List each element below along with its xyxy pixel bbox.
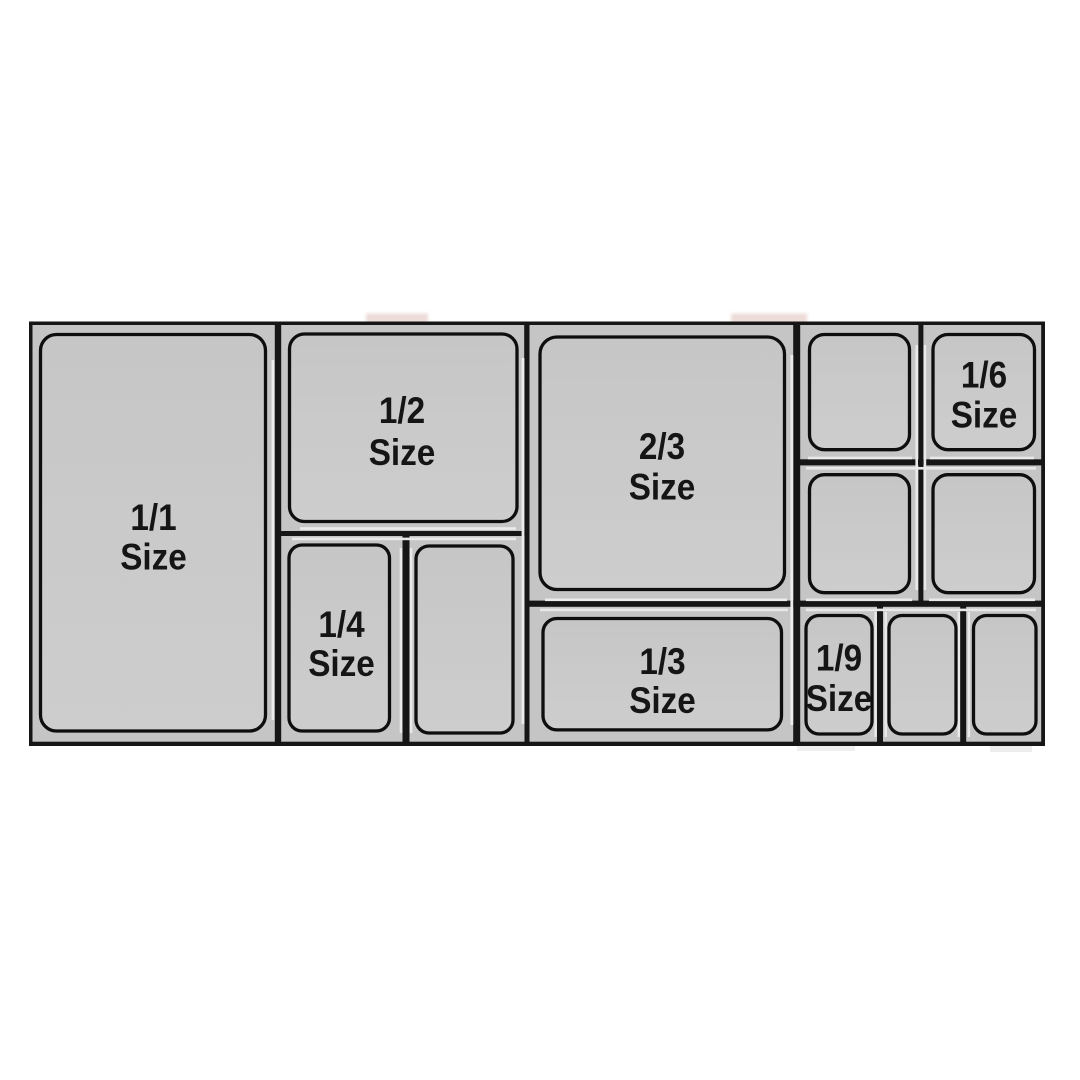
svg-text:Size: Size [629,681,696,722]
svg-text:1/2: 1/2 [379,391,425,432]
svg-text:1/9: 1/9 [816,638,862,679]
svg-text:1/3: 1/3 [639,642,685,683]
svg-text:Size: Size [369,433,436,474]
svg-text:2/3: 2/3 [639,427,685,468]
svg-text:1/6: 1/6 [961,355,1007,396]
svg-text:Size: Size [806,679,873,720]
svg-text:Size: Size [951,395,1018,436]
svg-text:Size: Size [308,644,375,685]
svg-text:Size: Size [629,467,696,508]
svg-text:1/4: 1/4 [318,605,365,646]
svg-text:1/1: 1/1 [130,498,176,539]
svg-text:Size: Size [120,537,187,578]
